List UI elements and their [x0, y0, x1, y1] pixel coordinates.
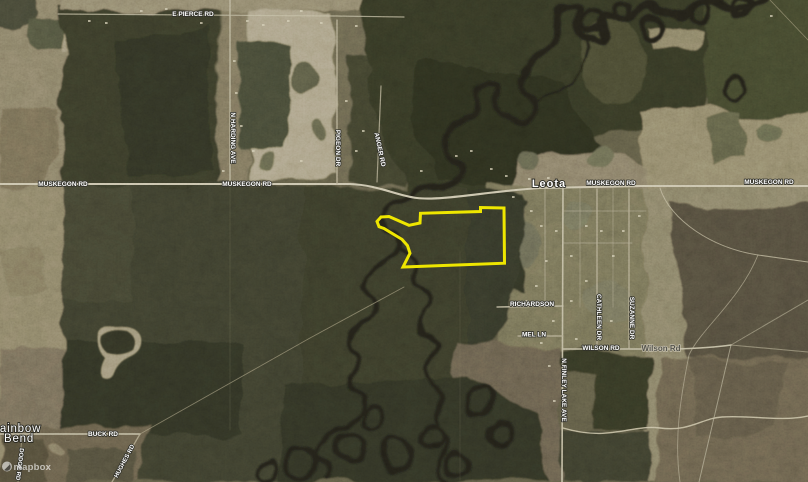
svg-text:CATHLEEN DR: CATHLEEN DR [595, 294, 602, 340]
svg-text:RICHARDSON: RICHARDSON [510, 301, 554, 308]
svg-text:MUSKEGON RD: MUSKEGON RD [744, 179, 794, 186]
svg-text:MUSKEGON RD: MUSKEGON RD [586, 180, 636, 187]
svg-text:N HARDING AVE: N HARDING AVE [229, 112, 236, 164]
svg-text:SUZANNE DR: SUZANNE DR [628, 297, 635, 340]
svg-text:Wilson Rd: Wilson Rd [641, 344, 680, 353]
svg-text:MEL LN: MEL LN [522, 332, 546, 339]
svg-text:WILSON RD: WILSON RD [582, 345, 619, 352]
svg-text:BUCK RD: BUCK RD [88, 431, 118, 438]
svg-text:Bend: Bend [4, 433, 34, 445]
svg-text:N FINLEY LAKE AVE: N FINLEY LAKE AVE [560, 358, 567, 422]
svg-text:E PIERCE RD: E PIERCE RD [172, 11, 214, 18]
svg-text:PIGEON DR: PIGEON DR [334, 130, 341, 167]
svg-text:mapbox: mapbox [14, 462, 52, 473]
svg-text:MUSKEGON RD: MUSKEGON RD [38, 181, 88, 188]
svg-text:MUSKEGON RD: MUSKEGON RD [222, 181, 272, 188]
svg-text:Leota: Leota [532, 178, 566, 190]
